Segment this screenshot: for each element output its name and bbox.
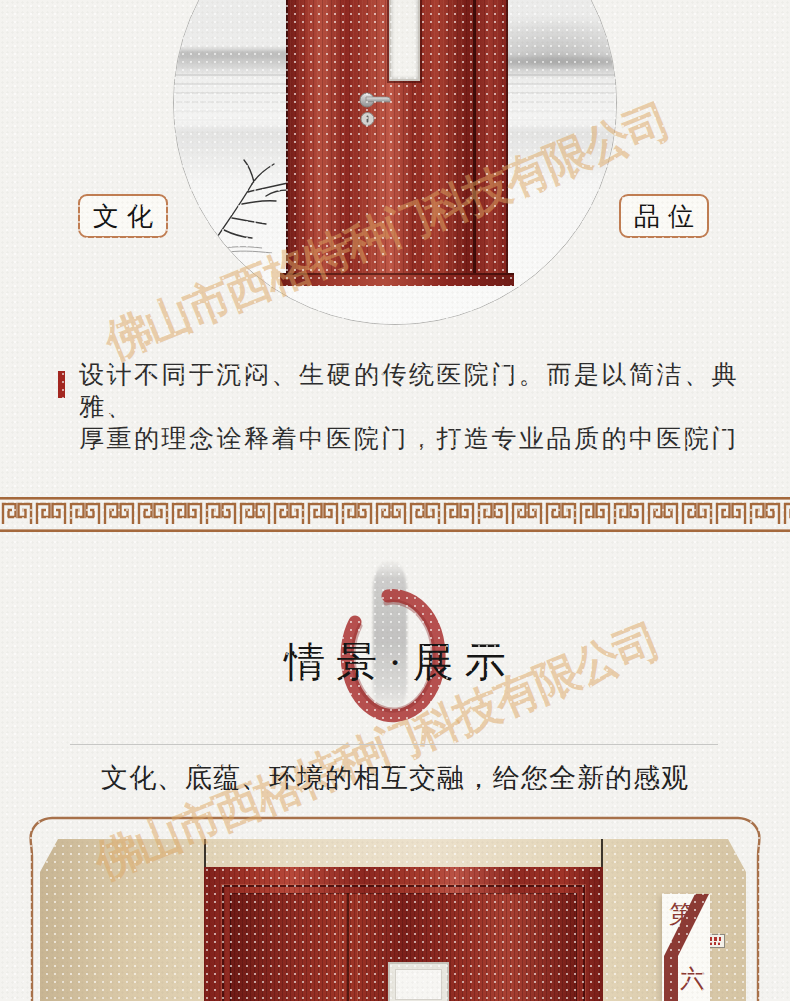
section-title: 情景·展示 [0, 635, 790, 690]
intro-paragraph: 设计不同于沉闷、生硬的传统医院门。而是以简洁、典雅、 厚重的理念诠释着中医院门，… [79, 359, 747, 455]
door-leaf-gap [473, 0, 476, 273]
chinese-corner-frame [20, 810, 770, 1001]
intro-line-1: 设计不同于沉闷、生硬的传统医院门。而是以简洁、典雅、 [79, 359, 747, 423]
tag-taste-label: 品位 [626, 199, 702, 234]
accent-bar [58, 371, 65, 398]
door-vision-glass [389, 0, 420, 81]
bare-tree-branches [202, 156, 298, 256]
door-base-sill [280, 273, 514, 286]
hero-circle-image [173, 0, 617, 325]
tag-taste: 品位 [619, 194, 709, 238]
hero-door-image [286, 0, 508, 286]
intro-line-2: 厚重的理念诠释着中医院门，打造专业品质的中医院门 [79, 423, 747, 455]
tag-culture-label: 文化 [85, 199, 161, 234]
meander-divider [0, 497, 790, 532]
door-handle-and-lock [358, 90, 418, 132]
product-detail-page: 佛山市西格特种门科技有限公司 佛山市西格特种门科技有限公司 文化 品位 设计不同… [0, 0, 790, 1001]
divider-line [70, 744, 718, 745]
section-subtitle: 文化、底蕴、环境的相互交融，给您全新的感观 [0, 760, 790, 796]
tag-culture: 文化 [78, 194, 168, 238]
